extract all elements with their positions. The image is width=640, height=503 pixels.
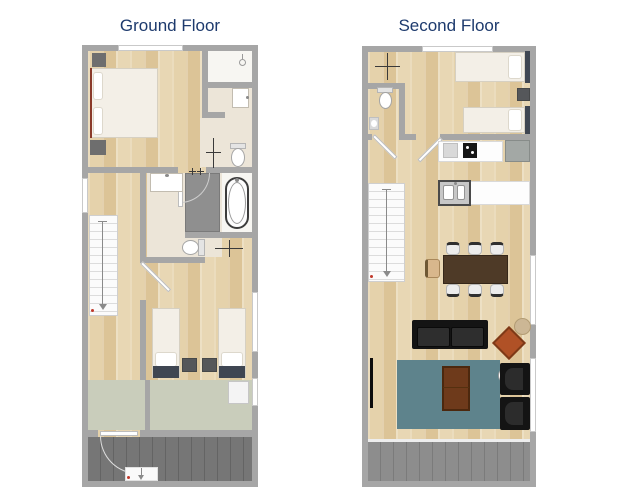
pillow — [508, 109, 522, 131]
pillow — [93, 107, 103, 135]
shower-room-floor — [208, 51, 252, 82]
stairs-arrow — [386, 189, 387, 272]
wall-bottom — [82, 481, 258, 487]
wall-deck-b — [140, 430, 252, 437]
sofa-cushion — [451, 327, 484, 347]
bathroom-floor-ext — [200, 118, 208, 167]
bathtub-faucet-icon — [235, 178, 239, 182]
dining-table — [443, 255, 508, 284]
light-symbol-icon — [213, 138, 214, 168]
pillow — [508, 55, 522, 79]
window-top — [118, 45, 183, 51]
faucet-icon — [454, 182, 457, 185]
bed-headboard — [525, 51, 530, 83]
wardrobe — [92, 53, 106, 67]
sofa-cushion — [417, 327, 450, 347]
lounge-chair-cushion — [505, 368, 523, 390]
pillow — [221, 352, 243, 367]
entry-marker-dot — [127, 476, 130, 479]
faucet-icon — [246, 96, 249, 99]
nightstand — [182, 358, 197, 372]
wall-wc-right — [399, 83, 405, 140]
wall-boot-divider — [145, 380, 150, 430]
dining-chair — [468, 242, 482, 255]
wall-hall-b — [140, 300, 146, 380]
light-symbol-icon — [215, 248, 243, 249]
second-floor-plan — [362, 46, 536, 487]
lounge-chair-cushion — [505, 402, 523, 425]
fridge — [505, 140, 530, 162]
coffee-table — [442, 366, 470, 411]
bed-headboard — [153, 366, 179, 378]
sink-bowl — [443, 185, 454, 200]
dining-chair — [490, 242, 504, 255]
floorplan-canvas: Ground Floor Second Floor — [0, 0, 640, 503]
toilet — [379, 92, 392, 109]
staircase — [89, 215, 118, 316]
wc-sink-basin — [371, 120, 377, 127]
balcony — [368, 442, 530, 481]
wall-left — [82, 45, 88, 487]
shower-hose-icon — [242, 54, 243, 59]
wall-right — [252, 45, 258, 487]
nightstand — [517, 88, 530, 101]
nightstand — [202, 358, 217, 372]
toilet — [231, 148, 245, 167]
wall-divider-b — [400, 134, 416, 140]
wall-tub-bottom — [185, 232, 252, 238]
entry-arrow-head — [138, 475, 144, 480]
balcony-sill — [368, 439, 530, 442]
wardrobe — [90, 140, 106, 155]
ground-floor-plan — [82, 45, 258, 487]
window-left — [82, 178, 88, 213]
floor-lamp — [514, 318, 531, 335]
wall-bathroom-jog — [202, 112, 225, 118]
light-symbol-icon — [375, 66, 400, 67]
dining-chair — [446, 284, 460, 297]
wall-hall-a — [140, 173, 146, 262]
shower-head-icon — [239, 59, 246, 66]
stairs-marker-dot — [370, 275, 373, 278]
stove — [463, 143, 477, 158]
bathtub-basin — [228, 182, 246, 224]
light-symbol-icon — [206, 152, 221, 153]
second-floor-title: Second Floor — [362, 16, 536, 36]
dining-chair — [468, 284, 482, 297]
wall-bathroom-left — [202, 88, 208, 112]
shower-valve-icon — [197, 171, 204, 172]
wall-bottom — [362, 481, 536, 487]
window-right-bedroom — [252, 292, 258, 352]
pillow — [155, 352, 177, 367]
stairs-arrow — [102, 221, 103, 305]
wall-bath-bottom — [140, 257, 205, 263]
dining-chair — [446, 242, 460, 255]
window-right-dining — [530, 255, 536, 325]
shower-valve-icon — [189, 171, 196, 172]
toilet-tank — [198, 239, 205, 256]
stairs-arrow-head — [99, 304, 107, 310]
wooden-chair — [425, 259, 440, 278]
ground-floor-title: Ground Floor — [82, 16, 258, 36]
tv — [370, 358, 373, 408]
stairs-arrow-head — [383, 271, 391, 277]
window-right-boot — [252, 378, 258, 406]
storage-cabinet — [228, 381, 249, 404]
bed-headboard — [219, 366, 245, 378]
coffee-table-seam — [443, 387, 469, 388]
pillow — [93, 72, 103, 100]
dining-chair — [490, 284, 504, 297]
balcony-door — [530, 358, 536, 432]
door-leaf-entry — [100, 431, 138, 436]
bed-headboard — [90, 68, 92, 138]
kitchen-appliance — [443, 143, 458, 158]
wall-deck-a — [88, 430, 98, 437]
faucet-icon — [165, 174, 169, 177]
sink-bowl — [457, 185, 465, 200]
toilet — [182, 240, 199, 255]
bed-headboard — [525, 106, 530, 134]
stairs-marker-dot — [91, 309, 94, 312]
